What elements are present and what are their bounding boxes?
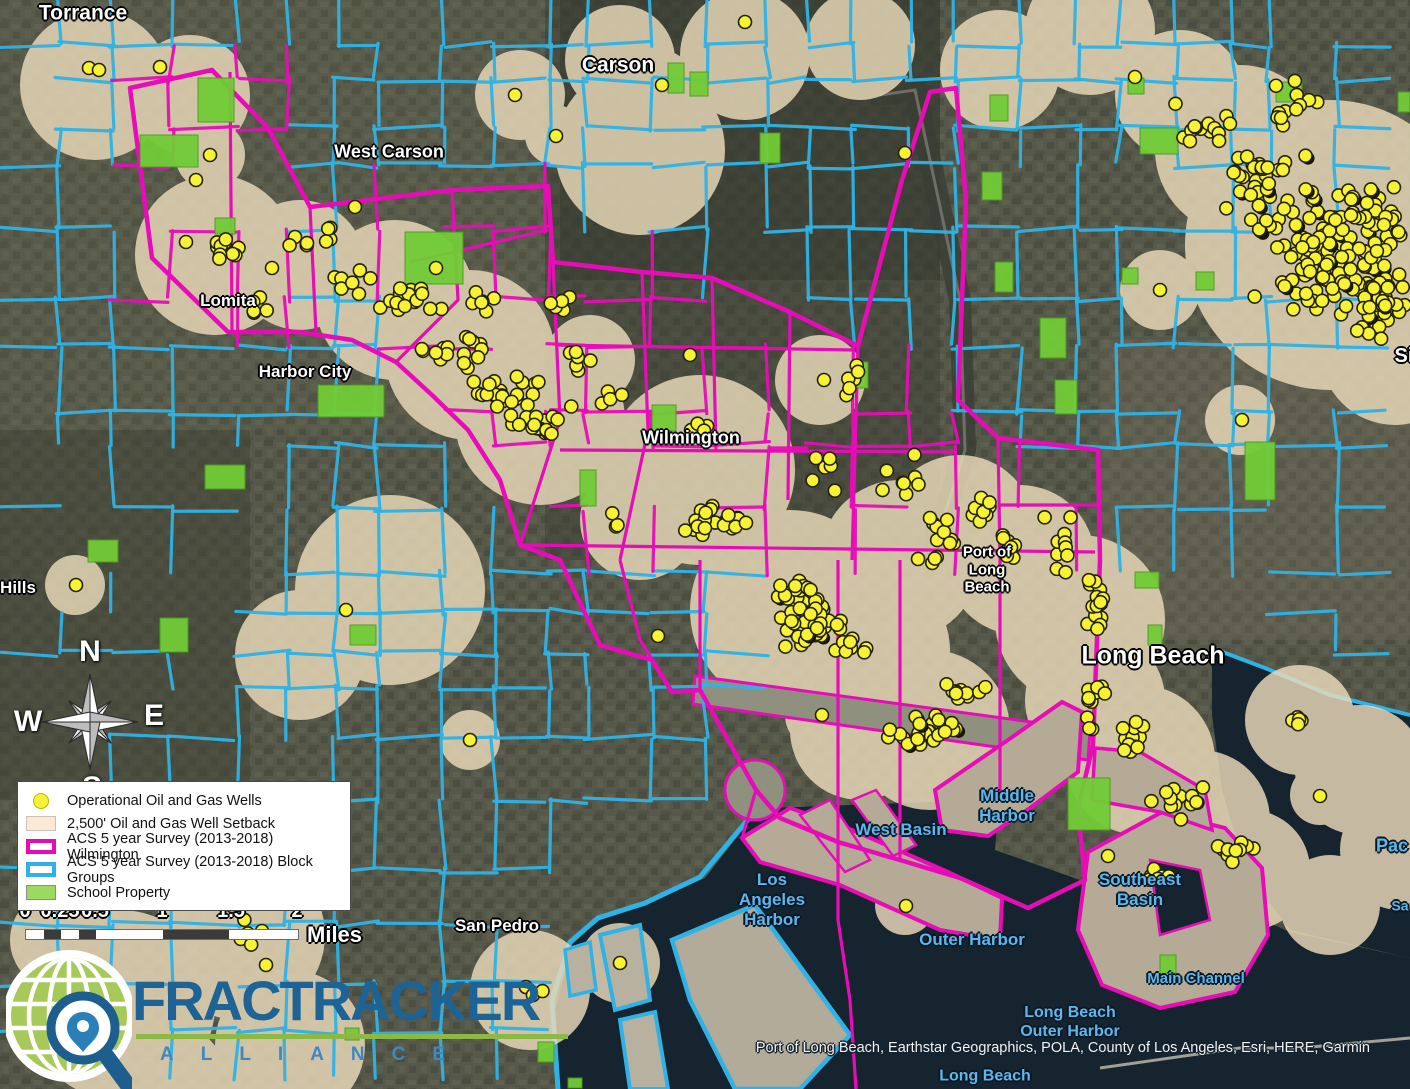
logo-subtitle: ALLIANCE <box>160 1044 472 1066</box>
well-point-swatch <box>26 793 56 808</box>
legend-label: School Property <box>67 885 170 901</box>
legend-label: Operational Oil and Gas Wells <box>67 793 262 809</box>
map-export: TorranceCarsonWest CarsonLomitaHarbor Ci… <box>0 0 1410 1089</box>
logo-title: FRACTRACKER <box>132 968 539 1033</box>
logo-underline <box>136 1034 568 1039</box>
block-groups-outline-swatch <box>26 862 56 877</box>
legend-item-blockgroups: ACS 5 year Survey (2013-2018) Block Grou… <box>26 858 342 881</box>
compass-west-label: W <box>14 705 42 739</box>
compass-rose: N W E S <box>16 636 164 804</box>
school-property-swatch <box>26 885 56 900</box>
legend-item-wells: Operational Oil and Gas Wells <box>26 789 342 812</box>
fractracker-logo: FRACTRACKER ALLIANCE <box>6 938 626 1089</box>
compass-north-label: N <box>79 635 101 669</box>
legend-label: 2,500' Oil and Gas Well Setback <box>67 816 275 832</box>
attribution-text: Port of Long Beach, Earthstar Geographic… <box>756 1040 1370 1056</box>
wilmington-outline-swatch <box>26 839 56 854</box>
globe-magnifier-icon <box>6 938 132 1089</box>
legend: Operational Oil and Gas Wells 2,500' Oil… <box>17 781 351 911</box>
compass-east-label: E <box>144 699 164 733</box>
setback-swatch <box>26 816 56 831</box>
legend-label: ACS 5 year Survey (2013-2018) Block Grou… <box>67 854 342 886</box>
